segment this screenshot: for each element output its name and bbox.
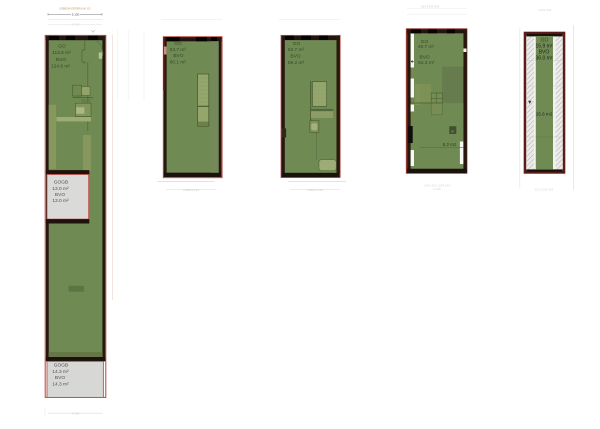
svg-text:BVO: BVO: [290, 54, 300, 60]
svg-text:5.130: 5.130: [72, 23, 80, 27]
svg-text:113.6 m²: 113.6 m²: [52, 50, 71, 56]
svg-text:5.130: 5.130: [72, 411, 80, 415]
svg-text:53.7 m²: 53.7 m²: [170, 47, 187, 53]
svg-text:63.3 m²: 63.3 m²: [418, 60, 435, 66]
svg-text:124.8 m²: 124.8 m²: [51, 64, 70, 70]
svg-text:534 3345 534: 534 3345 534: [421, 5, 440, 9]
svg-text:1234 234: 1234 234: [539, 8, 552, 12]
svg-text:2.966 2.164: 2.966 2.164: [307, 188, 323, 192]
svg-text:GEBRUIKSOPPERVLAK GO: GEBRUIKSOPPERVLAK GO: [59, 7, 90, 10]
svg-text:13.0 m²: 13.0 m²: [52, 186, 69, 192]
svg-text:5.130: 5.130: [72, 12, 80, 16]
svg-text:2.966 2.164: 2.966 2.164: [183, 188, 199, 192]
svg-text:5.2 m2: 5.2 m2: [443, 142, 457, 147]
svg-text:36.0 m²: 36.0 m²: [536, 55, 553, 61]
svg-text:15.6 m2: 15.6 m2: [536, 111, 553, 116]
svg-text:BVO: BVO: [55, 375, 65, 381]
svg-text:49.7 m²: 49.7 m²: [418, 44, 435, 50]
svg-text:BVO: BVO: [420, 55, 430, 61]
svg-text:GO: GO: [293, 41, 301, 47]
svg-text:53.7 m²: 53.7 m²: [288, 47, 305, 53]
svg-text:5.130: 5.130: [433, 187, 441, 191]
svg-text:14.3 m²: 14.3 m²: [52, 381, 69, 387]
svg-text:GOGB: GOGB: [54, 363, 68, 369]
svg-text:GO: GO: [174, 41, 182, 47]
svg-text:BVO: BVO: [55, 192, 65, 198]
svg-text:14.3 m²: 14.3 m²: [52, 369, 69, 375]
svg-text:BVO: BVO: [173, 53, 183, 59]
svg-text:13.0 m²: 13.0 m²: [52, 198, 69, 204]
svg-text:GO: GO: [58, 44, 66, 50]
svg-text:BVO: BVO: [56, 57, 66, 63]
svg-text:60.1 m²: 60.1 m²: [170, 59, 187, 65]
svg-text:59.2 m²: 59.2 m²: [288, 60, 305, 66]
svg-text:m: m: [451, 129, 454, 133]
svg-text:GOGB: GOGB: [54, 179, 68, 185]
svg-text:123 1234 123: 123 1234 123: [535, 188, 554, 192]
